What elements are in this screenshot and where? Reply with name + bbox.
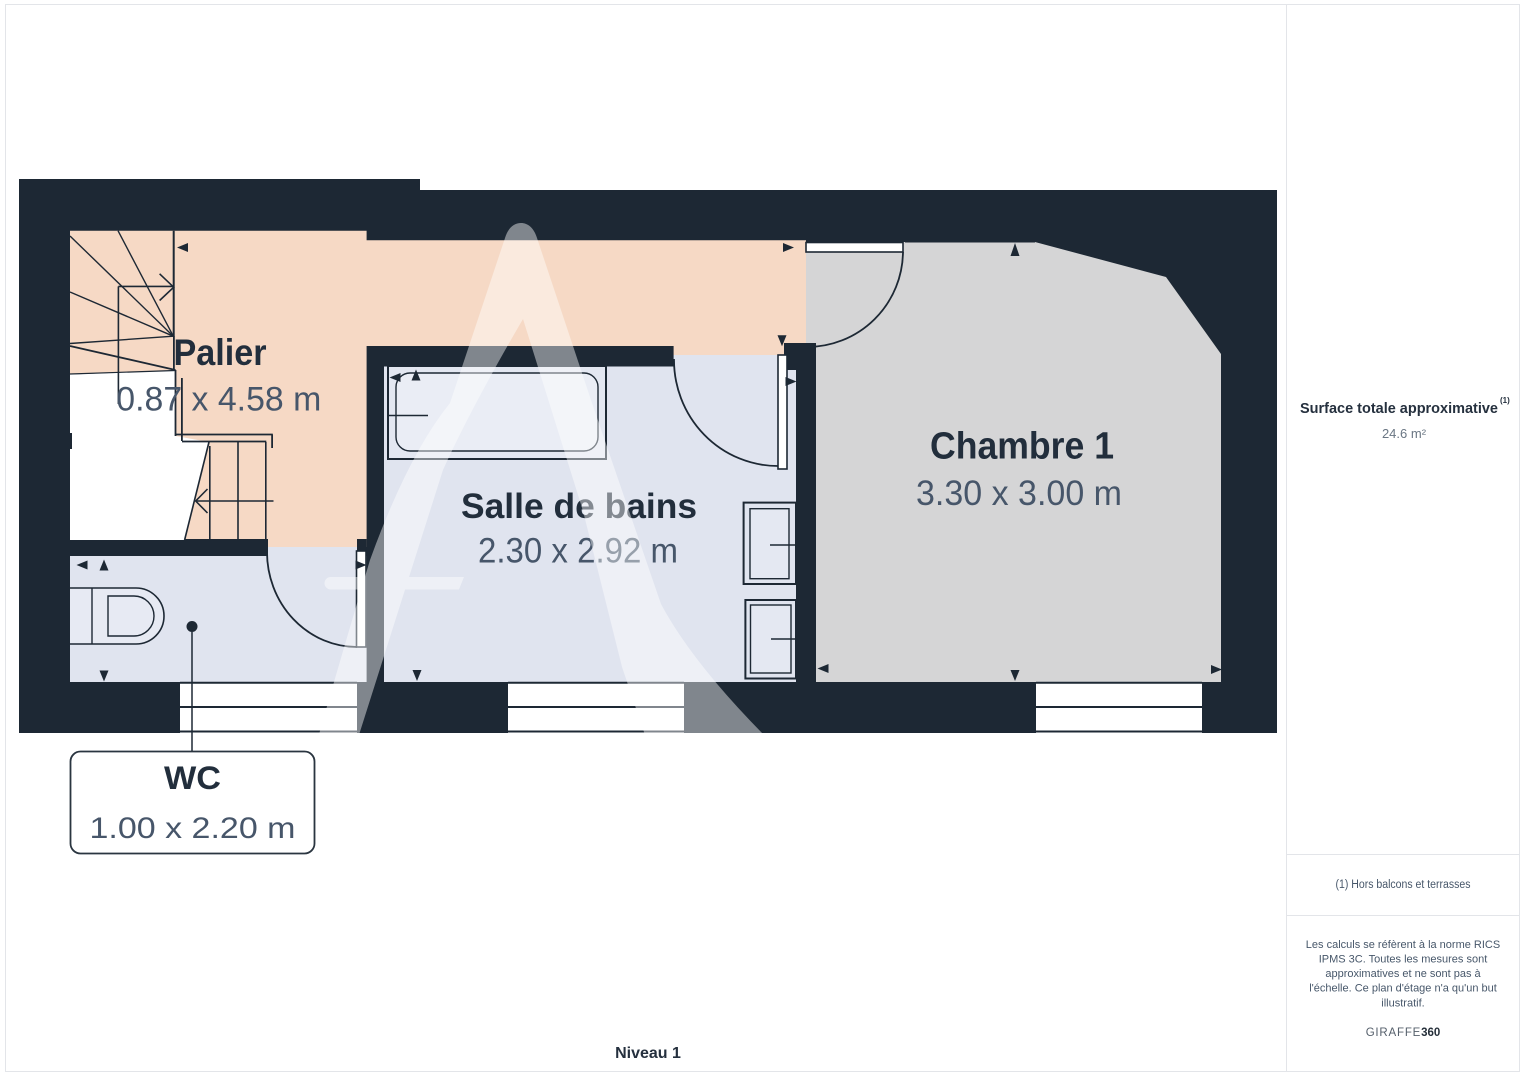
svg-text:(1) Hors balcons et terrasses: (1) Hors balcons et terrasses [1336, 879, 1471, 891]
svg-text:WC: WC [164, 760, 221, 796]
svg-text:Les calculs se réfèrent à la n: Les calculs se réfèrent à la norme RICS [1306, 939, 1500, 951]
svg-text:Niveau 1: Niveau 1 [615, 1045, 681, 1062]
svg-text:(1): (1) [1500, 396, 1510, 405]
svg-text:GIRAFFE360: GIRAFFE360 [1366, 1027, 1441, 1039]
svg-text:0.87 x 4.58 m: 0.87 x 4.58 m [116, 380, 321, 418]
svg-text:illustratif.: illustratif. [1381, 997, 1424, 1009]
svg-text:1.00 x 2.20 m: 1.00 x 2.20 m [90, 812, 296, 845]
svg-text:2.30 x 2.92 m: 2.30 x 2.92 m [478, 532, 678, 571]
svg-text:l'échelle. Ce plan d'étage n'a: l'échelle. Ce plan d'étage n'a qu'un but [1309, 983, 1497, 995]
svg-text:Palier: Palier [174, 332, 267, 373]
svg-text:Surface totale approximative: Surface totale approximative [1300, 401, 1498, 417]
svg-text:24.6 m²: 24.6 m² [1382, 426, 1427, 441]
svg-text:3.30 x 3.00 m: 3.30 x 3.00 m [916, 474, 1122, 513]
svg-text:IPMS 3C. Toutes les mesures so: IPMS 3C. Toutes les mesures sont [1319, 954, 1488, 966]
svg-text:Chambre 1: Chambre 1 [930, 426, 1114, 468]
svg-text:approximatives et ne sont pas: approximatives et ne sont pas à [1325, 968, 1481, 980]
